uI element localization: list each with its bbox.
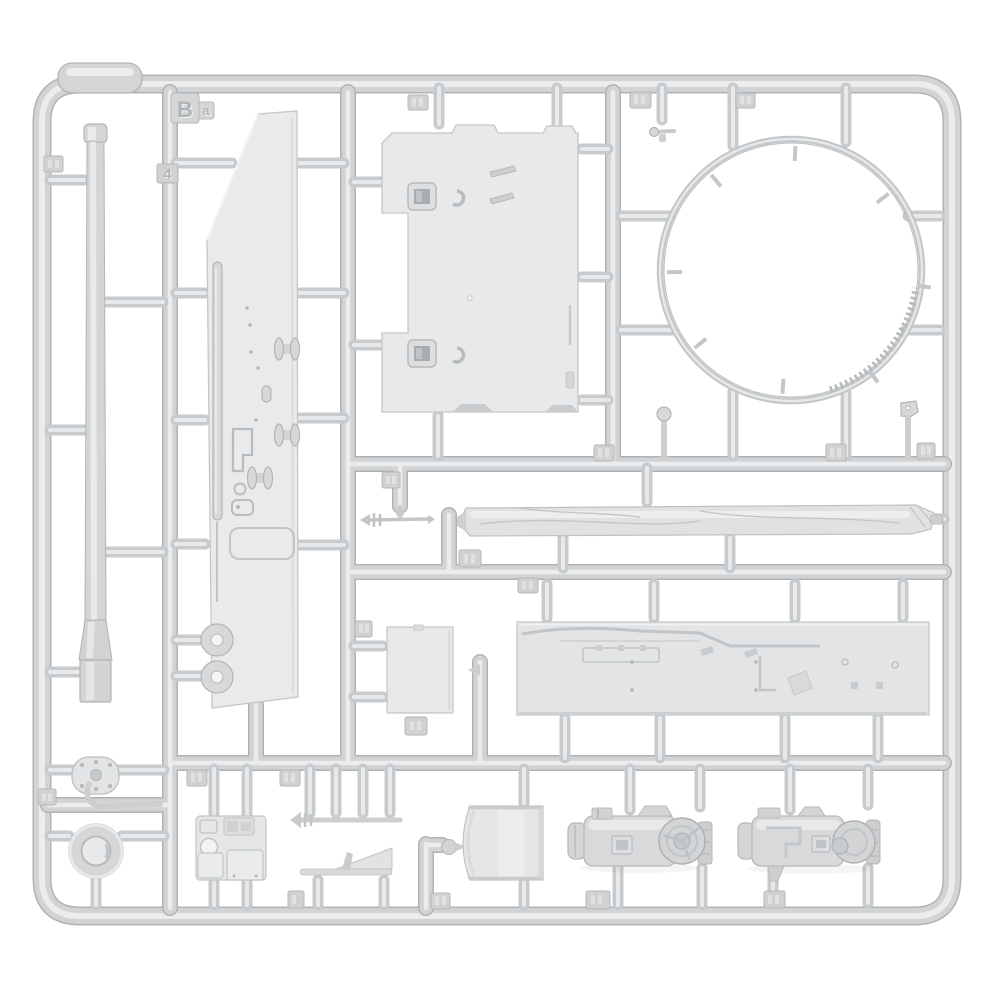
- gun-barrel-part: [79, 124, 112, 702]
- tarpaulin-roll-part: [457, 505, 943, 536]
- splash-guard-wedge-part: [300, 848, 392, 875]
- wheel-hub-part: [69, 824, 123, 878]
- hub-notch: [106, 844, 108, 858]
- engine-fin-bottom: [768, 866, 784, 881]
- frame-top-lump: [58, 63, 142, 93]
- donut-disc: [201, 624, 233, 656]
- sprue-photo: B B a a 4 4: [0, 0, 1000, 1000]
- hatch-opening: [408, 183, 436, 210]
- tarp-left-cone: [457, 511, 466, 531]
- engine-knob: [832, 838, 848, 854]
- hull-roof-plate-part: [382, 125, 578, 412]
- sprue-letter-tag: B B a a: [171, 93, 214, 123]
- curved-panel-part: [463, 806, 543, 880]
- round-access-cover-part: [72, 757, 119, 794]
- part-number: 4: [163, 166, 172, 183]
- barrel-breech: [80, 660, 111, 702]
- sprue-letter: B: [177, 97, 193, 122]
- hatch-opening: [408, 340, 436, 367]
- engine-top-bracket: [758, 808, 780, 818]
- sprue-suffix: a: [202, 103, 210, 118]
- small-pellet: [262, 386, 271, 402]
- ball-pin-fitting: [657, 407, 671, 457]
- tarp-end-pin: [930, 515, 943, 524]
- hull-side-plate-part: [201, 111, 300, 708]
- engine-cylinder-left-part: [568, 806, 712, 873]
- part-number-4-tag: 4 4: [157, 164, 178, 184]
- engine-cylinder-right-part: [738, 807, 880, 881]
- small-rectangular-plate-part: [387, 625, 453, 713]
- winch-handle-fitting: [650, 128, 675, 143]
- barrel-flare-cone: [79, 620, 112, 660]
- engine-top-fin: [798, 807, 825, 816]
- engine-top-fin: [638, 806, 672, 816]
- engine-nose: [568, 823, 586, 859]
- engine-deck-plate-part: [196, 816, 266, 880]
- bracket-fitting: [901, 401, 918, 457]
- engine-top-bracket: [592, 808, 612, 819]
- fender-plate-part: [517, 622, 929, 715]
- turret-ring-part: [660, 139, 931, 401]
- donut-disc: [201, 661, 233, 693]
